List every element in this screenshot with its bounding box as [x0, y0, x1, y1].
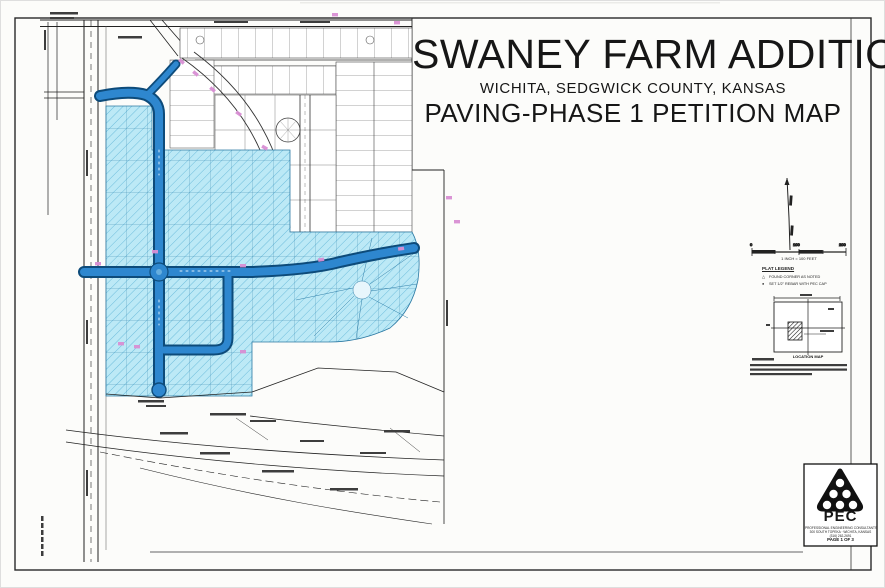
dot-symbol-icon: ●: [762, 282, 769, 287]
notes-microtext: [750, 358, 847, 375]
location-map-label: LOCATION MAP: [774, 354, 842, 359]
scale-tick-100: 100: [793, 242, 800, 247]
legend-item-found-corner: △FOUND CORNER AS NOTED: [762, 275, 820, 280]
title-line-1: SWANEY FARM ADDITION: [412, 31, 854, 78]
scan-smudge: [300, 2, 720, 4]
triangle-symbol-icon: △: [762, 275, 769, 280]
title-line-3: PAVING-PHASE 1 PETITION MAP: [412, 98, 854, 129]
north-arrow: [785, 178, 794, 250]
scanned-petition-map-sheet: 0 100 200 SWANEY FARM ADDITI: [0, 0, 885, 588]
location-map: [766, 294, 845, 355]
pec-logo-text: PEC: [804, 508, 877, 525]
legend-heading: PLAT LEGEND: [762, 266, 794, 272]
legend-item-label: SET 1/2" REBAR WITH PEC CAP: [769, 282, 827, 286]
scale-tick-200: 200: [839, 242, 846, 247]
scale-tick-0: 0: [750, 242, 753, 247]
legend-item-set-rebar: ●SET 1/2" REBAR WITH PEC CAP: [762, 282, 827, 287]
title-line-2: WICHITA, SEDGWICK COUNTY, KANSAS: [412, 80, 854, 97]
scale-bar: 0 100 200: [750, 242, 846, 256]
legend-item-label: FOUND CORNER AS NOTED: [769, 275, 820, 279]
page-number-label: PAGE 1 OF 3: [804, 537, 877, 542]
scale-label: 1 INCH = 100 FEET: [752, 257, 846, 262]
